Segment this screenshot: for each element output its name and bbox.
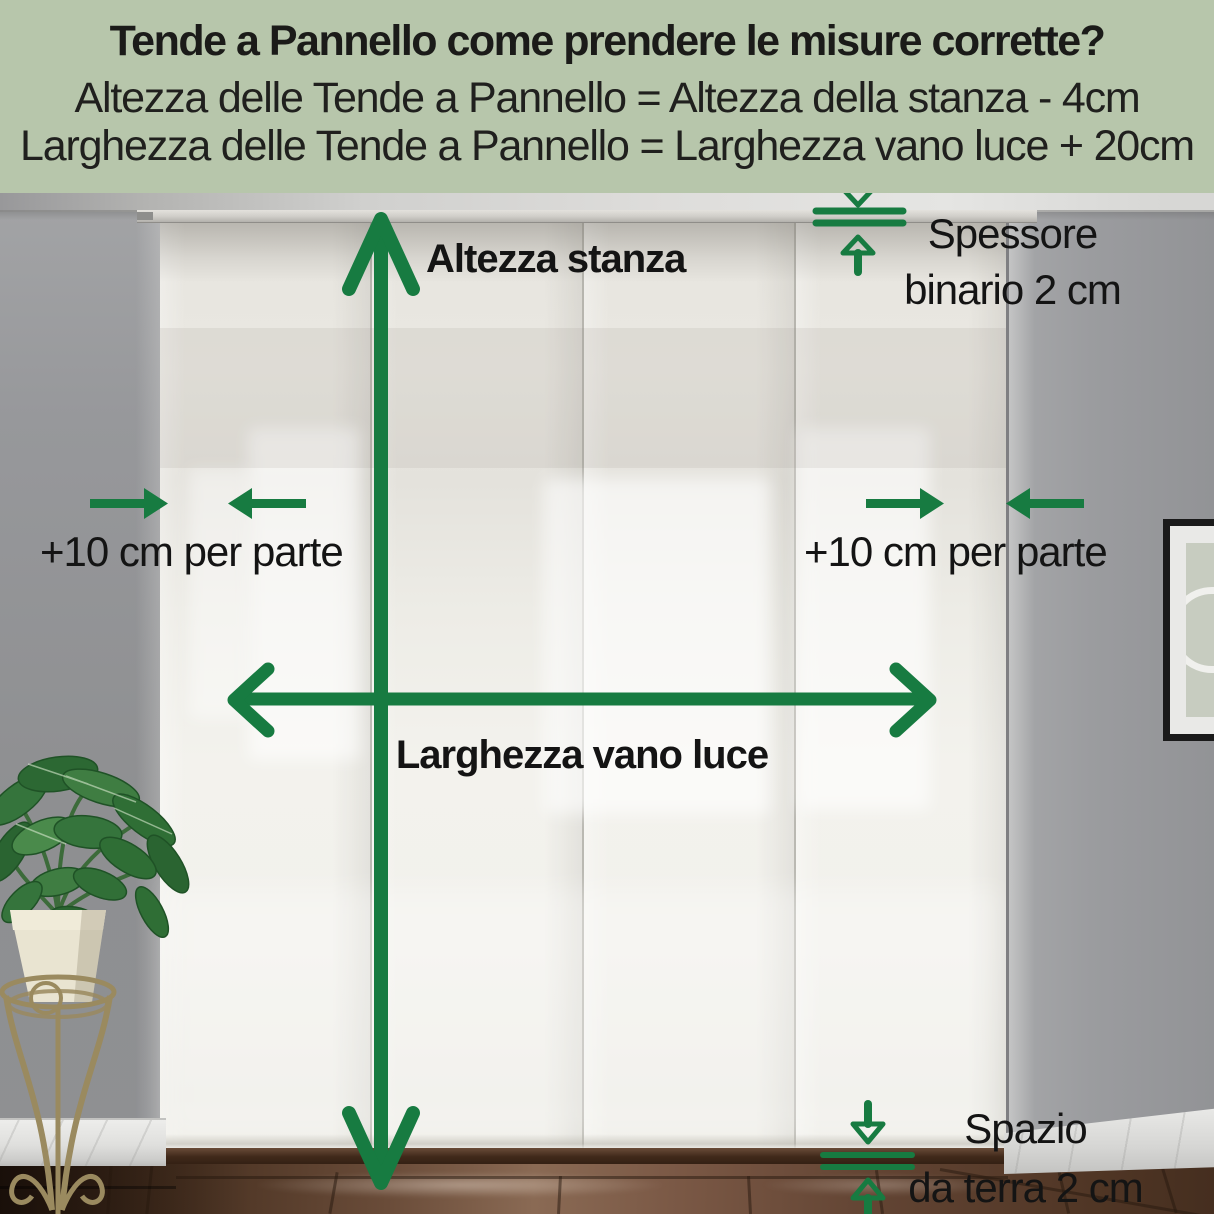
page-title: Tende a Pannello come prendere le misure… bbox=[0, 0, 1214, 66]
tile-grout-line bbox=[176, 1176, 1008, 1179]
width-formula: Larghezza delle Tende a Pannello = Largh… bbox=[0, 122, 1214, 170]
right-margin-label: +10 cm per parte bbox=[804, 528, 1107, 576]
floor-gap-label: Spazio da terra 2 cm bbox=[893, 1099, 1158, 1214]
track-thickness-label-line1: Spessore bbox=[880, 206, 1145, 262]
floor-gap-label-line2: da terra 2 cm bbox=[893, 1158, 1158, 1214]
window-light-glow bbox=[168, 888, 1000, 1138]
opening-width-label: Larghezza vano luce bbox=[382, 733, 782, 778]
window-light-glow bbox=[188, 468, 250, 720]
room-height-label: Altezza stanza bbox=[426, 237, 685, 282]
height-formula: Altezza delle Tende a Pannello = Altezza… bbox=[0, 74, 1214, 122]
picture-frame bbox=[1163, 519, 1214, 741]
window-light-glow bbox=[798, 428, 930, 810]
track-thickness-label: Spessore binario 2 cm bbox=[880, 206, 1145, 318]
panel-curtains bbox=[160, 220, 1008, 1152]
header: Tende a Pannello come prendere le misure… bbox=[0, 0, 1214, 193]
frame-mat bbox=[1170, 526, 1214, 734]
track-thickness-label-line2: binario 2 cm bbox=[880, 262, 1145, 318]
curtain-shade bbox=[160, 328, 1008, 468]
plant-decoration bbox=[0, 740, 196, 1214]
plant-stand bbox=[2, 977, 114, 1214]
measurement-infographic: Altezza stanza Larghezza vano luce +10 c… bbox=[0, 0, 1214, 1214]
floor-gap-label-line1: Spazio bbox=[893, 1099, 1158, 1158]
frame-artwork bbox=[1186, 543, 1214, 717]
window-light-glow bbox=[248, 428, 360, 760]
artwork-circle bbox=[1186, 587, 1214, 673]
left-margin-label: +10 cm per parte bbox=[40, 528, 343, 576]
